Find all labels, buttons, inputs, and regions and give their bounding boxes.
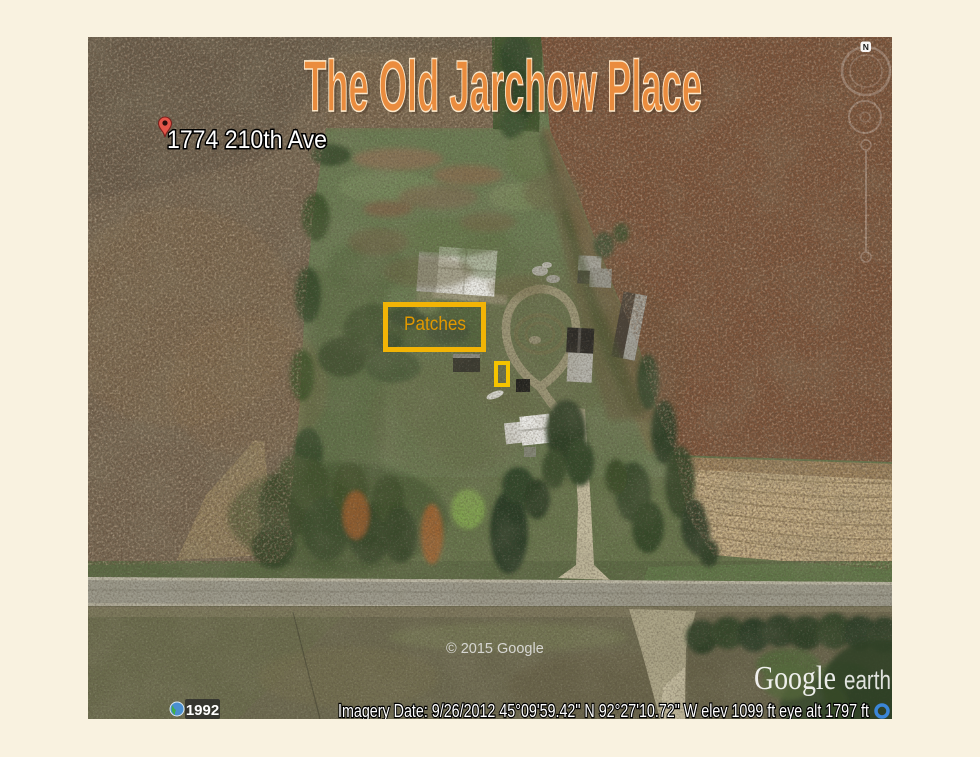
svg-text:N: N: [863, 42, 869, 52]
svg-text:1774 210th Ave: 1774 210th Ave: [167, 126, 327, 154]
svg-text:Google: Google: [754, 660, 836, 697]
svg-text:Patches: Patches: [404, 314, 466, 335]
svg-text:1992: 1992: [186, 702, 219, 719]
svg-text:Imagery Date: 9/26/2012 45°0: Imagery Date: 9/26/2012 45°09'59.42" N 9…: [338, 701, 869, 719]
svg-text:© 2015 Google: © 2015 Google: [446, 641, 544, 657]
svg-text:The Old Jarchow Place: The Old Jarchow Place: [304, 47, 702, 127]
svg-text:earth: earth: [844, 665, 891, 695]
